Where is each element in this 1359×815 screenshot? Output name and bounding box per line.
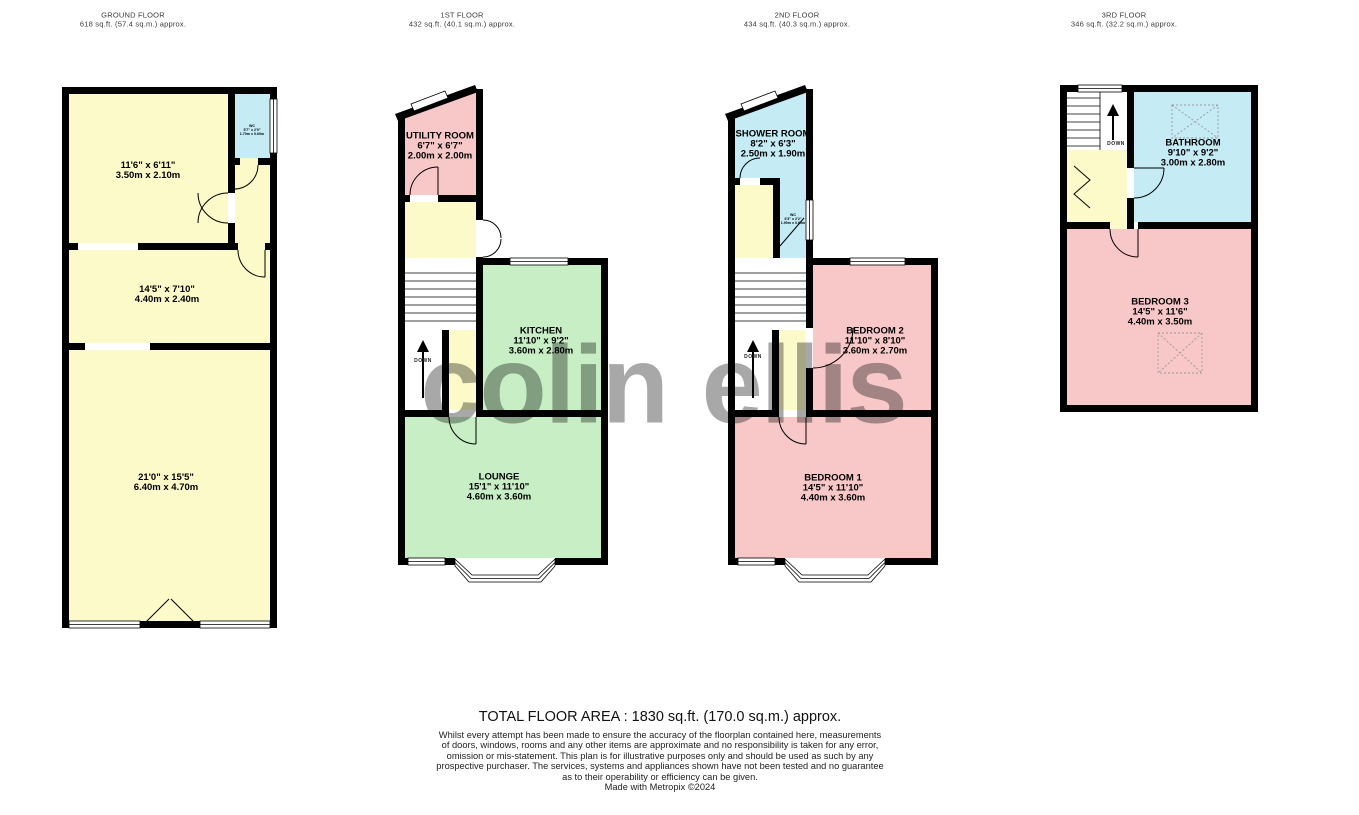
floorplan-page: colin ellis GROUND FLOOR 618 sq.ft. (57.… — [0, 0, 1359, 815]
room-label-lounge: LOUNGE 15'1" x 11'10" 4.60m x 3.60m — [467, 472, 531, 501]
down-label-first: DOWN — [414, 358, 432, 364]
agency-watermark: colin ellis — [420, 322, 905, 449]
room-label-bedroom3: BEDROOM 3 14'5" x 11'6" 4.40m x 3.50m — [1128, 297, 1192, 326]
room-label-bathroom: BATHROOM 9'10" x 9'2" 3.00m x 2.80m — [1161, 138, 1225, 167]
room-label-ground-front: 11'6" x 6'11" 3.50m x 2.10m — [116, 161, 180, 181]
room-label-utility: UTILITY ROOM 6'7" x 6'7" 2.00m x 2.00m — [406, 131, 474, 160]
second-floor-title: 2ND FLOOR 434 sq.ft. (40.3 sq.m.) approx… — [744, 12, 850, 29]
down-label-second: DOWN — [744, 354, 762, 360]
room-label-bedroom2: BEDROOM 2 11'10" x 8'10" 3.60m x 2.70m — [843, 326, 907, 355]
ground-floor-title: GROUND FLOOR 618 sq.ft. (57.4 sq.m.) app… — [80, 12, 186, 29]
room-label-second-wc: WC 6'3" x 2'2" 1.90m x 0.65m — [781, 213, 805, 225]
metropix-credit: Made with Metropix ©2024 — [436, 782, 883, 792]
room-label-bedroom1: BEDROOM 1 14'5" x 11'10" 4.40m x 3.60m — [801, 473, 865, 502]
third-windows — [1078, 85, 1122, 92]
room-label-kitchen: KITCHEN 11'10" x 9'2" 3.60m x 2.80m — [509, 326, 573, 355]
third-floor-title: 3RD FLOOR 346 sq.ft. (32.2 sq.m.) approx… — [1071, 12, 1177, 29]
room-label-ground-middle: 14'5" x 7'10" 4.40m x 2.40m — [135, 285, 199, 305]
room-label-ground-wc: WC 5'7" x 2'0" 1.70m x 0.60m — [240, 124, 264, 136]
room-label-shower: SHOWER ROOM 8'2" x 6'3" 2.50m x 1.90m — [736, 129, 811, 158]
third-floor-plan — [1050, 78, 1268, 423]
room-label-ground-rear: 21'0" x 15'5" 6.40m x 4.70m — [134, 473, 198, 493]
down-label-third: DOWN — [1107, 141, 1125, 147]
disclaimer: Whilst every attempt has been made to en… — [436, 730, 883, 792]
first-floor-title: 1ST FLOOR 432 sq.ft. (40.1 sq.m.) approx… — [409, 12, 515, 29]
total-floor-area: TOTAL FLOOR AREA : 1830 sq.ft. (170.0 sq… — [479, 709, 841, 725]
